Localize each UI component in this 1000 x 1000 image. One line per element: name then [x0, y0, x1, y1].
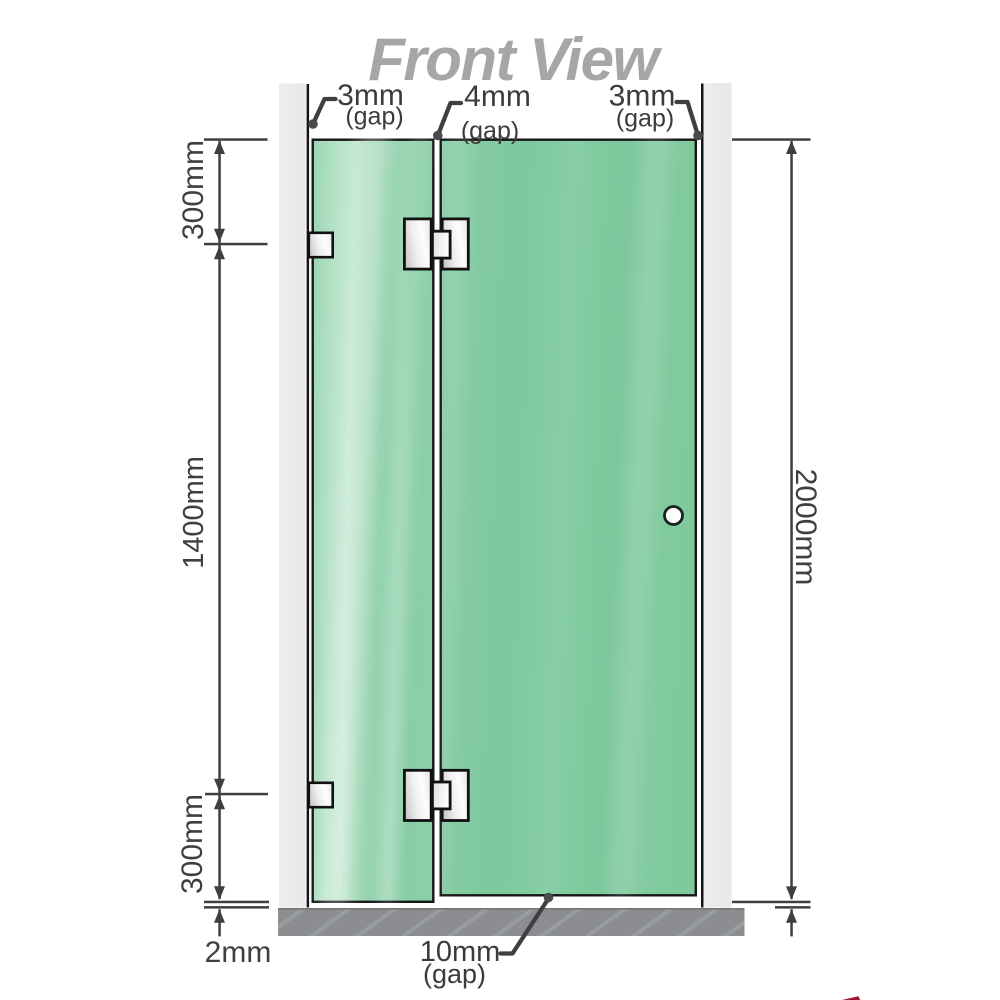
- svg-text:2000mm: 2000mm: [789, 469, 822, 586]
- svg-text:2mm: 2mm: [205, 936, 272, 969]
- svg-text:300mm: 300mm: [176, 794, 209, 894]
- svg-text:(gap): (gap): [345, 103, 403, 131]
- svg-text:300mm: 300mm: [177, 140, 210, 240]
- svg-text:(gap): (gap): [616, 105, 674, 133]
- svg-text:4mm: 4mm: [464, 80, 531, 113]
- svg-text:(gap): (gap): [461, 117, 519, 145]
- svg-text:1400mm: 1400mm: [178, 456, 210, 569]
- svg-text:(gap): (gap): [423, 959, 486, 989]
